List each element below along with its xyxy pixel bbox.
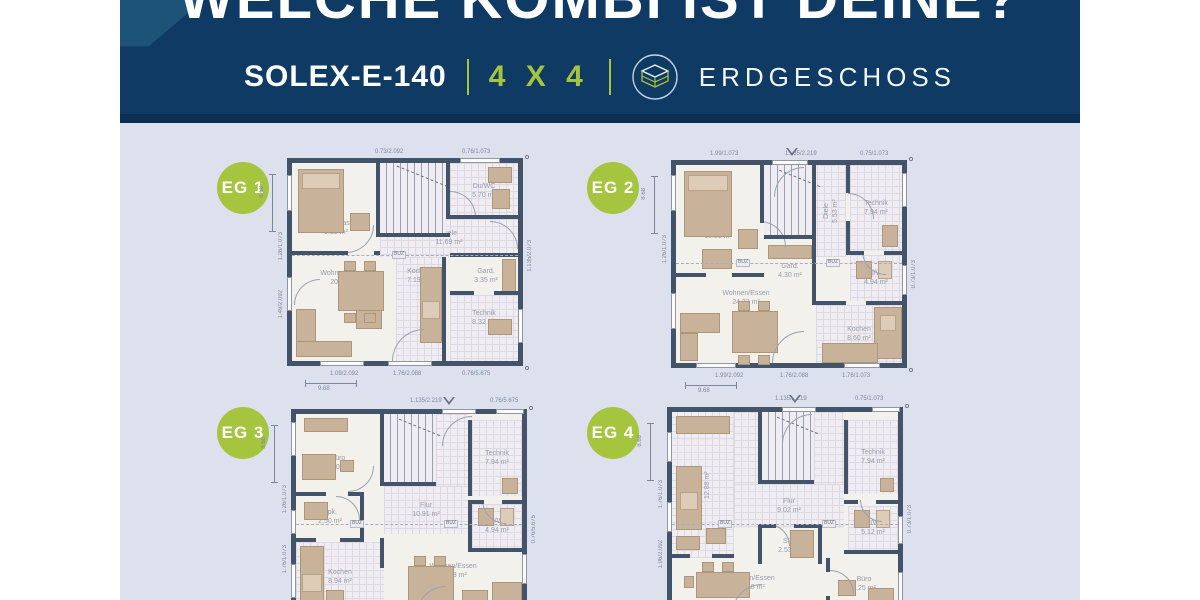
furniture-block — [344, 261, 356, 271]
survey-point — [525, 366, 529, 370]
furniture-block — [880, 315, 896, 331]
window-opening — [671, 293, 676, 329]
floorplan-eg2: EG 2 8.68 1.99/1.073 1.135/2.219 0.75/1.… — [580, 140, 920, 395]
wall — [818, 524, 822, 564]
window-opening — [287, 277, 292, 311]
furniture-block — [680, 333, 698, 361]
furniture-block — [680, 492, 698, 510]
dim-mark: 1.99/1.073 — [710, 151, 738, 157]
wall — [758, 524, 762, 564]
wall — [812, 257, 816, 305]
room-diele: Diele5.53 m² — [816, 165, 846, 257]
window-opening — [902, 173, 907, 207]
floorplan-eg1: EG 1 8.68 0.73/2.092 0.76/1.073 1.09/2.0… — [210, 140, 550, 395]
furniture-block — [822, 343, 878, 363]
section-line — [296, 524, 522, 525]
dim-mark: 1.76/1.073 — [282, 545, 288, 573]
poster-canvas: WELCHE KOMBI IST DEINE? SOLEX-E-140 4 X … — [0, 0, 1200, 600]
wall — [844, 550, 898, 554]
section-line — [672, 524, 898, 525]
window-opening — [320, 361, 364, 366]
dim-mark: 1.06/2.092 — [658, 540, 664, 568]
survey-point — [909, 157, 913, 161]
dim-mark: 1.49/2.092 — [278, 290, 284, 318]
floor-cube-icon — [631, 53, 679, 101]
wall — [812, 165, 816, 257]
window-opening — [291, 564, 296, 598]
section-label: BUZ — [350, 520, 364, 528]
tiled-floor — [814, 412, 844, 484]
furniture-block — [492, 582, 522, 600]
section-label: BUZ — [822, 520, 836, 528]
wall — [502, 500, 522, 504]
furniture-block — [768, 245, 812, 259]
furniture-block — [676, 416, 730, 434]
dim-mark: 0.76/5.675 — [531, 515, 537, 543]
section-label: BUZ — [826, 259, 840, 267]
furniture-block — [302, 454, 336, 480]
section-label: BUZ — [718, 520, 732, 528]
width-dimension: 9.68 — [318, 386, 330, 392]
width-dimension: 9.68 — [698, 388, 710, 394]
dim-mark: 0.73/1.073 — [911, 260, 917, 288]
window-opening — [898, 572, 903, 600]
entrance-marker-icon — [789, 395, 801, 403]
furniture-block — [706, 528, 726, 544]
wall — [732, 273, 764, 277]
wall — [376, 163, 380, 237]
furniture-block — [868, 588, 894, 600]
dim-mark: 1.135/2.219 — [410, 398, 442, 404]
section-label: BUZ — [444, 520, 458, 528]
wall — [846, 221, 850, 255]
window-opening — [460, 158, 500, 163]
section-line — [676, 263, 902, 264]
wall — [384, 482, 436, 486]
staircase — [384, 414, 436, 486]
dim-mark: 0.73/1.073 — [907, 505, 913, 533]
furniture-block — [338, 271, 384, 311]
plan-outline: Büro8.80 m² Treppe4.25 m² Technik7.94 m²… — [291, 409, 527, 600]
window-opening — [872, 407, 900, 412]
furniture-block — [738, 229, 758, 249]
furniture-block — [502, 478, 518, 494]
furniture-block — [364, 313, 376, 323]
furniture-block — [676, 536, 700, 550]
survey-point — [909, 368, 913, 372]
wall — [762, 480, 814, 484]
wall — [676, 273, 706, 277]
furniture-block — [434, 556, 446, 566]
survey-point — [529, 406, 533, 410]
badge-eg3: EG 3 — [217, 407, 269, 459]
dim-mark: 1.76/1.073 — [842, 373, 870, 379]
dim-mark: 0.73/2.092 — [375, 149, 403, 155]
height-dimension: 8.68 — [259, 186, 265, 198]
dim-mark: 0.75/1.073 — [855, 396, 883, 402]
window-opening — [898, 516, 903, 544]
furniture-block — [684, 576, 694, 588]
window-opening — [287, 175, 292, 211]
window-opening — [496, 409, 524, 414]
floor-label: ERDGESCHOSS — [699, 62, 956, 93]
window-opening — [844, 363, 880, 368]
badge-eg2: EG 2 — [587, 162, 639, 214]
separator-bar — [467, 59, 469, 95]
wall — [446, 215, 518, 219]
window-opening — [518, 309, 523, 343]
furniture-block — [502, 259, 516, 293]
wall — [764, 235, 816, 239]
wall — [826, 558, 830, 572]
furniture-block — [364, 261, 376, 271]
wall — [712, 554, 734, 558]
furniture-block — [738, 355, 750, 365]
height-dimension-line — [654, 176, 655, 234]
window-opening — [772, 160, 808, 165]
survey-point — [905, 404, 909, 408]
staircase — [380, 163, 446, 237]
header: WELCHE KOMBI IST DEINE? SOLEX-E-140 4 X … — [120, 0, 1080, 123]
window-opening — [291, 510, 296, 534]
height-dimension-line — [274, 425, 275, 483]
section-label: BUZ — [736, 259, 750, 267]
wall — [380, 538, 384, 568]
wall — [844, 420, 848, 494]
wall — [468, 420, 472, 496]
wall — [446, 163, 450, 219]
wall — [376, 233, 450, 237]
wall — [296, 492, 326, 496]
furniture-block — [462, 590, 488, 600]
furniture-block — [488, 167, 512, 183]
furniture-block — [492, 189, 510, 209]
wall — [360, 496, 364, 538]
wall — [672, 554, 690, 558]
wall — [876, 500, 898, 504]
floorplan-eg4: EG 4 8.68 1.135/2.219 0.75/1.073 1.76/1.… — [580, 385, 920, 600]
combo-count: 4 X 4 — [489, 60, 589, 94]
window-opening — [442, 409, 476, 414]
survey-point — [525, 155, 529, 159]
wall — [296, 538, 316, 542]
furniture-block — [738, 301, 750, 311]
furniture-block — [414, 556, 426, 566]
window-opening — [667, 432, 672, 462]
dim-mark: 1.76/2.088 — [393, 371, 421, 377]
dim-mark: 0.76/5.675 — [490, 398, 518, 404]
furniture-block — [790, 530, 814, 558]
window-opening — [667, 502, 672, 532]
furniture-block — [702, 249, 732, 269]
section-label: BUZ — [392, 251, 406, 259]
dim-mark: 0.76/1.073 — [462, 149, 490, 155]
furniture-block — [732, 311, 778, 353]
furniture-block — [302, 173, 340, 189]
furniture-block — [880, 478, 894, 492]
dim-mark: 1.76/1.073 — [658, 480, 664, 508]
dim-mark: 0.76/5.675 — [462, 371, 490, 377]
dim-mark: 1.09/2.092 — [330, 371, 358, 377]
furniture-block — [344, 313, 356, 323]
height-dimension: 8.68 — [637, 435, 643, 447]
entrance-marker-icon — [786, 148, 798, 156]
dim-mark: 1.26/1.073 — [282, 485, 288, 513]
furniture-block — [688, 175, 728, 191]
furniture-block — [758, 355, 770, 365]
wall — [380, 414, 384, 486]
wall — [846, 165, 850, 193]
badge-eg4: EG 4 — [587, 407, 639, 459]
wall — [468, 504, 472, 548]
wall — [760, 165, 764, 223]
content-area: WELCHE KOMBI IST DEINE? SOLEX-E-140 4 X … — [120, 0, 1080, 600]
headline: WELCHE KOMBI IST DEINE? — [120, 0, 1080, 28]
wall — [340, 538, 364, 542]
wall — [442, 257, 446, 361]
height-dimension-line — [272, 174, 273, 232]
header-subline: SOLEX-E-140 4 X 4 ERDGESCHOSS — [120, 50, 1080, 104]
window-opening — [696, 363, 736, 368]
dim-mark: 1.135/2.073 — [527, 240, 533, 272]
furniture-block — [304, 502, 328, 520]
furniture-block — [296, 341, 352, 357]
furniture-block — [680, 313, 720, 333]
furniture-block — [722, 562, 734, 572]
furniture-block — [702, 562, 714, 572]
dim-mark: 1.76/2.088 — [780, 373, 808, 379]
entrance-marker-icon — [443, 397, 455, 405]
height-dimension: 8.68 — [261, 437, 267, 449]
wall — [758, 412, 762, 484]
separator-bar — [609, 59, 611, 95]
dim-mark: 1.26/1.073 — [278, 232, 284, 260]
plan-outline: Büro/Gast9.38 m² Treppe5.25 m² Du/WC5.70… — [287, 158, 523, 366]
wall — [866, 301, 902, 305]
window-opening — [291, 422, 296, 456]
furniture-block — [304, 418, 348, 432]
wall — [846, 251, 864, 255]
furniture-block — [882, 225, 898, 247]
wall — [826, 596, 830, 600]
furniture-block — [422, 301, 440, 319]
window-opening — [902, 265, 907, 295]
wall — [884, 251, 902, 255]
dim-mark: 1.99/2.092 — [715, 373, 743, 379]
furniture-block — [758, 301, 770, 311]
width-dimension-line — [305, 383, 357, 384]
window-opening — [671, 175, 676, 211]
wall — [468, 548, 522, 552]
window-opening — [522, 554, 527, 584]
wall — [844, 500, 858, 504]
dim-mark: 0.75/1.073 — [860, 151, 888, 157]
floorplan-eg3: EG 3 8.68 1.135/2.219 0.76/5.675 1.26/1.… — [210, 385, 550, 600]
wall — [450, 291, 474, 295]
height-dimension-line — [650, 423, 651, 481]
dim-mark: 1.26/1.073 — [662, 235, 668, 263]
model-name: SOLEX-E-140 — [244, 60, 447, 94]
wall — [812, 301, 846, 305]
height-dimension: 8.68 — [641, 188, 647, 200]
plan-outline: Kochen12.88 m² Treppe4.25 m² Technik7.94… — [667, 407, 903, 600]
wall — [494, 291, 518, 295]
window-opening — [388, 361, 432, 366]
furniture-block — [326, 590, 344, 600]
furniture-block — [488, 319, 512, 335]
furniture-block — [302, 574, 322, 592]
window-opening — [782, 407, 816, 412]
plan-outline: Büro10.81 m² Treppe4.25 m² Diele5.53 m² … — [671, 160, 907, 368]
